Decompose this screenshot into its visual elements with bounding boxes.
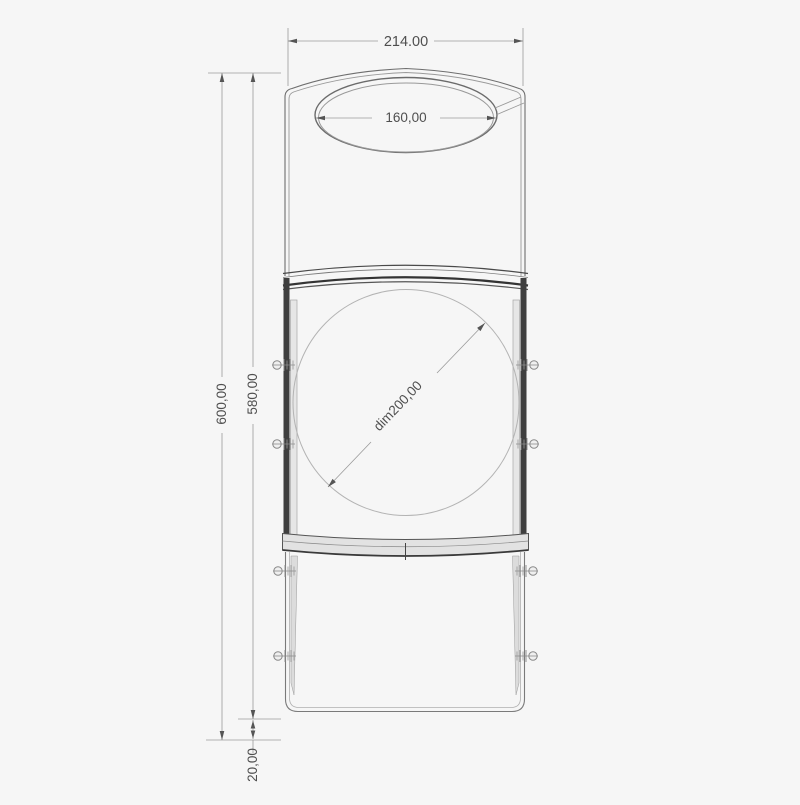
right-side-panel-edge	[521, 278, 527, 546]
dimension-body-height: 580,00	[238, 73, 281, 719]
dim-label-body-height: 580,00	[245, 373, 260, 414]
right-inner-strip	[513, 300, 520, 545]
cabinet-lower-section	[286, 552, 525, 712]
lower-outline-outer	[286, 552, 525, 712]
dim-label-bottom-offset: 20,00	[245, 748, 260, 782]
dimension-overall-height: 600,00	[206, 73, 281, 740]
left-taper-strip	[291, 556, 298, 695]
drawing-canvas: 214.00 160,00 600,00 580,00 20,00	[0, 0, 800, 800]
technical-drawing: 214.00 160,00 600,00 580,00 20,00	[0, 0, 800, 800]
dim-label-top-width: 214.00	[384, 34, 428, 50]
dim-label-overall-height: 600,00	[214, 383, 229, 424]
rim-edge-line	[497, 103, 524, 115]
right-taper-strip	[513, 556, 520, 695]
lower-separator-band	[283, 534, 529, 561]
dimension-bottom-offset: 20,00	[245, 720, 260, 782]
dim-label-circle-diameter: dim200,00	[371, 378, 425, 434]
cabinet-middle-section	[284, 278, 527, 546]
dimension-circle-diameter: dim200,00	[328, 323, 485, 487]
upper-separator-band	[283, 265, 528, 289]
dimension-opening-width: 160,00	[316, 110, 496, 125]
left-side-panel-edge	[284, 278, 290, 546]
left-inner-strip	[291, 300, 298, 545]
cabinet-upper-section	[285, 69, 525, 277]
dim-label-opening-width: 160,00	[385, 110, 426, 125]
lower-outline-inner	[290, 552, 521, 708]
